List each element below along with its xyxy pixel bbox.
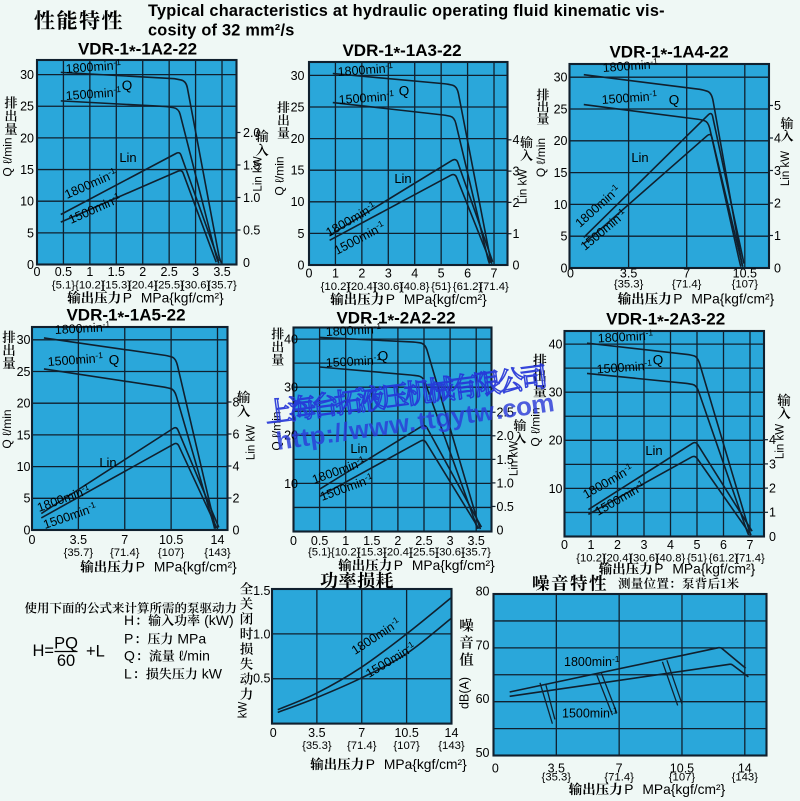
svg-text:1: 1 <box>86 265 93 279</box>
svg-text:{107}: {107} <box>732 279 759 291</box>
svg-text:5: 5 <box>438 267 445 281</box>
svg-text:4: 4 <box>513 133 520 147</box>
svg-text:dB(A): dB(A) <box>458 677 472 709</box>
svg-text:14: 14 <box>211 533 225 547</box>
svg-text:1.0: 1.0 <box>253 628 270 642</box>
svg-text:3: 3 <box>641 538 648 552</box>
svg-text:7: 7 <box>747 538 754 552</box>
svg-text:Q: Q <box>669 93 680 108</box>
svg-text:H=: H= <box>33 642 55 660</box>
svg-text:Q: Q <box>109 353 120 368</box>
svg-text:kW: kW <box>238 702 250 719</box>
svg-text:25: 25 <box>554 102 568 116</box>
svg-text:7: 7 <box>491 267 498 281</box>
svg-text:10.5: 10.5 <box>394 726 418 740</box>
svg-text:Lin kW: Lin kW <box>780 151 792 186</box>
svg-text:(kW): (kW) <box>204 612 234 628</box>
svg-text:15: 15 <box>291 164 305 178</box>
svg-text:{10.2}: {10.2} <box>75 280 105 292</box>
svg-text:40: 40 <box>549 338 563 352</box>
svg-text:{35.7}: {35.7} <box>461 547 491 559</box>
svg-text:20: 20 <box>291 132 305 146</box>
svg-text:10: 10 <box>20 195 34 209</box>
svg-text:Q: Q <box>122 78 133 93</box>
svg-text:Q ℓ/min: Q ℓ/min <box>273 156 287 195</box>
svg-text:{71.4}: {71.4} <box>672 279 702 291</box>
svg-text:Lin: Lin <box>645 443 662 458</box>
svg-text:4: 4 <box>774 131 781 145</box>
svg-text:VDR-1*-1A2-22: VDR-1*-1A2-22 <box>78 40 197 62</box>
svg-text:0: 0 <box>561 538 568 552</box>
svg-text:1800min-1: 1800min-1 <box>597 327 654 345</box>
svg-text:{20.4}: {20.4} <box>347 281 377 293</box>
svg-text:P: P <box>366 757 375 772</box>
svg-text:2: 2 <box>614 538 621 552</box>
svg-text:P: P <box>136 560 145 575</box>
svg-text:{143}: {143} <box>732 772 759 784</box>
svg-text:{71.4}: {71.4} <box>347 740 377 752</box>
svg-text:80: 80 <box>476 585 490 599</box>
svg-text:7: 7 <box>358 726 365 740</box>
svg-text:30: 30 <box>17 333 31 347</box>
svg-text:6: 6 <box>233 427 240 441</box>
svg-text:{107}: {107} <box>158 547 185 559</box>
svg-text:0: 0 <box>290 534 297 548</box>
svg-text:5: 5 <box>561 230 568 244</box>
svg-text:PQ: PQ <box>54 635 78 653</box>
svg-text:0.5: 0.5 <box>497 500 514 514</box>
svg-text:30: 30 <box>291 69 305 83</box>
svg-text:VDR-1*-1A3-22: VDR-1*-1A3-22 <box>342 41 461 63</box>
svg-text:3: 3 <box>192 265 199 279</box>
svg-text:10: 10 <box>554 198 568 212</box>
svg-text:Lin: Lin <box>631 150 648 165</box>
svg-text:Lin kW: Lin kW <box>517 169 529 204</box>
svg-text:3: 3 <box>385 267 392 281</box>
svg-text:5: 5 <box>24 492 31 506</box>
svg-text:Q ℓ/min: Q ℓ/min <box>1 137 15 176</box>
svg-text:14: 14 <box>445 726 459 740</box>
svg-text:25: 25 <box>291 100 305 114</box>
svg-text:Lin kW: Lin kW <box>508 441 520 476</box>
svg-text:cosity of 32 mm²/s: cosity of 32 mm²/s <box>148 22 295 40</box>
svg-text:Q: Q <box>124 648 135 664</box>
svg-text:{35.3}: {35.3} <box>614 279 644 291</box>
svg-text:{35.3}: {35.3} <box>302 740 332 752</box>
svg-text:1: 1 <box>588 538 595 552</box>
svg-text:1800min-1: 1800min-1 <box>325 321 382 339</box>
svg-text:6: 6 <box>464 267 471 281</box>
svg-text:Q: Q <box>399 84 410 99</box>
svg-text:50: 50 <box>476 746 490 760</box>
svg-text:Lin kW: Lin kW <box>245 425 257 460</box>
svg-text:Lin: Lin <box>99 455 116 470</box>
svg-text:P: P <box>624 782 633 797</box>
svg-text:25: 25 <box>17 365 31 379</box>
svg-text:60: 60 <box>57 652 75 670</box>
svg-text:MPa{kgf/cm²}: MPa{kgf/cm²} <box>404 292 487 307</box>
svg-text:Q ℓ/min: Q ℓ/min <box>0 409 14 448</box>
svg-text:5: 5 <box>694 538 701 552</box>
svg-text:10.5: 10.5 <box>159 533 183 547</box>
svg-text:MPa{kgf/cm²}: MPa{kgf/cm²} <box>642 782 725 797</box>
svg-text:1: 1 <box>774 229 781 243</box>
svg-text:1800min-1: 1800min-1 <box>564 654 620 669</box>
svg-text:2: 2 <box>769 482 776 496</box>
svg-text:70: 70 <box>476 638 490 652</box>
svg-text:ℓ/min: ℓ/min <box>179 648 210 664</box>
svg-text:0: 0 <box>270 726 277 740</box>
svg-text:1.5: 1.5 <box>108 265 125 279</box>
svg-text:2: 2 <box>139 265 146 279</box>
svg-text:Lin kW: Lin kW <box>253 156 265 191</box>
svg-text:20: 20 <box>549 434 563 448</box>
svg-text:0: 0 <box>233 523 240 537</box>
svg-text:P: P <box>394 558 403 573</box>
svg-text:6: 6 <box>720 538 727 552</box>
svg-text:VDR-1*-2A3-22: VDR-1*-2A3-22 <box>606 310 725 332</box>
svg-text:10: 10 <box>284 477 298 491</box>
svg-text:60: 60 <box>476 692 490 706</box>
svg-text:0.5: 0.5 <box>55 265 72 279</box>
svg-text:30: 30 <box>554 71 568 85</box>
svg-text:2: 2 <box>774 196 781 210</box>
svg-text:MPa{kgf/cm²}: MPa{kgf/cm²} <box>672 562 755 577</box>
svg-text:2: 2 <box>233 491 240 505</box>
svg-text:0: 0 <box>34 265 41 279</box>
svg-text:MPa{kgf/cm²}: MPa{kgf/cm²} <box>412 558 495 573</box>
svg-text:P: P <box>124 631 133 647</box>
svg-text:10: 10 <box>291 195 305 209</box>
svg-text:15: 15 <box>17 428 31 442</box>
svg-text:MPa{kgf/cm²}: MPa{kgf/cm²} <box>141 291 224 306</box>
svg-text:3.5: 3.5 <box>213 265 230 279</box>
svg-text:1: 1 <box>769 506 776 520</box>
svg-text:15: 15 <box>20 163 34 177</box>
svg-text:1.0: 1.0 <box>497 476 514 490</box>
svg-text:2: 2 <box>358 267 365 281</box>
svg-text:{71.4}: {71.4} <box>110 547 140 559</box>
svg-text:Lin: Lin <box>394 171 411 186</box>
svg-text:2.5: 2.5 <box>160 265 177 279</box>
svg-text:{107}: {107} <box>393 740 420 752</box>
svg-text:Q ℓ/min: Q ℓ/min <box>534 138 548 177</box>
svg-text:7: 7 <box>121 533 128 547</box>
svg-text:Lin kW: Lin kW <box>774 424 786 459</box>
svg-text:MPa: MPa <box>177 631 206 647</box>
svg-text:1.5: 1.5 <box>253 584 270 598</box>
svg-text:20: 20 <box>20 131 34 145</box>
svg-text:P: P <box>123 291 132 306</box>
svg-text:5: 5 <box>774 99 781 113</box>
svg-text:5: 5 <box>27 226 34 240</box>
svg-text:{5.1}: {5.1} <box>308 547 331 559</box>
svg-text:{5.1}: {5.1} <box>52 280 75 292</box>
svg-text:0.5: 0.5 <box>243 223 260 237</box>
svg-text:kW: kW <box>202 666 223 682</box>
svg-text:MPa{kgf/cm²}: MPa{kgf/cm²} <box>384 757 467 772</box>
svg-text:0: 0 <box>243 256 250 270</box>
svg-text:0: 0 <box>497 523 504 537</box>
svg-text:0: 0 <box>769 530 776 544</box>
svg-text:1: 1 <box>513 227 520 241</box>
svg-text:1800min-1: 1800min-1 <box>54 319 111 337</box>
svg-text:Lin: Lin <box>119 150 136 165</box>
svg-text:0: 0 <box>513 258 520 272</box>
svg-text:20: 20 <box>17 397 31 411</box>
svg-text:0: 0 <box>298 258 305 272</box>
svg-text:P: P <box>654 562 663 577</box>
svg-text:Q: Q <box>378 349 389 364</box>
svg-text:3.5: 3.5 <box>308 726 325 740</box>
svg-text:MPa{kgf/cm²}: MPa{kgf/cm²} <box>691 292 774 307</box>
svg-text:8: 8 <box>233 395 240 409</box>
svg-text:1500min-1: 1500min-1 <box>562 705 618 720</box>
svg-text:0: 0 <box>567 267 574 281</box>
svg-text:0: 0 <box>492 762 499 776</box>
svg-text:1: 1 <box>332 267 339 281</box>
svg-text:{143}: {143} <box>204 547 231 559</box>
svg-text:1.0: 1.0 <box>243 191 260 205</box>
svg-text:10: 10 <box>549 482 563 496</box>
svg-text:Typical characteristics at hyd: Typical characteristics at hydraulic ope… <box>148 2 665 20</box>
svg-text:L: L <box>124 666 132 682</box>
svg-text:{35.3}: {35.3} <box>542 772 572 784</box>
svg-text:1500min-1: 1500min-1 <box>325 352 382 370</box>
svg-text:MPa{kgf/cm²}: MPa{kgf/cm²} <box>154 560 237 575</box>
svg-text:10: 10 <box>17 460 31 474</box>
svg-text:Q: Q <box>653 353 664 368</box>
svg-text:+L: +L <box>86 643 105 661</box>
svg-text:20: 20 <box>554 134 568 148</box>
svg-text:H: H <box>124 612 134 628</box>
svg-text:{35.7}: {35.7} <box>64 547 94 559</box>
svg-text:15: 15 <box>554 166 568 180</box>
svg-text:0: 0 <box>306 267 313 281</box>
svg-text:5: 5 <box>298 227 305 241</box>
svg-text:{143}: {143} <box>438 740 465 752</box>
svg-text:25: 25 <box>20 100 34 114</box>
svg-text:0.5: 0.5 <box>253 672 270 686</box>
svg-text:40: 40 <box>284 333 298 347</box>
svg-text:4: 4 <box>233 459 240 473</box>
svg-text:P: P <box>386 292 395 307</box>
svg-text:30: 30 <box>284 381 298 395</box>
svg-text:0: 0 <box>774 261 781 275</box>
svg-text:30: 30 <box>20 68 34 82</box>
svg-text:4: 4 <box>667 538 674 552</box>
svg-text:{10.2}: {10.2} <box>321 281 351 293</box>
svg-text:3.5: 3.5 <box>70 533 87 547</box>
svg-text:4: 4 <box>411 267 418 281</box>
svg-text:0: 0 <box>29 533 36 547</box>
svg-text:P: P <box>673 292 682 307</box>
